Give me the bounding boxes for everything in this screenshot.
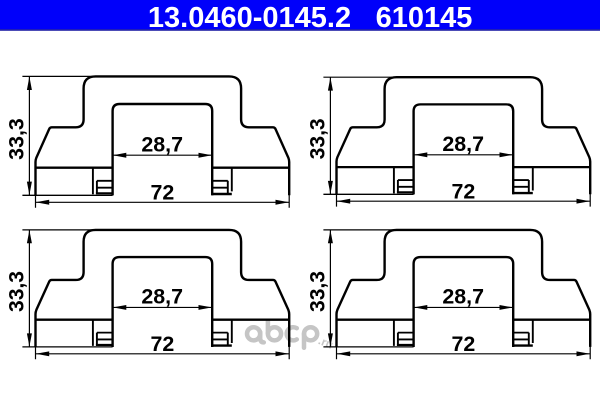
svg-text:33,3: 33,3 bbox=[306, 271, 329, 312]
svg-text:13.0460-0145.2: 13.0460-0145.2 bbox=[148, 2, 351, 34]
svg-text:33,3: 33,3 bbox=[5, 118, 29, 160]
svg-text:28,7: 28,7 bbox=[442, 132, 484, 156]
svg-text:28,7: 28,7 bbox=[141, 132, 183, 156]
svg-text:72: 72 bbox=[452, 333, 476, 356]
svg-text:72: 72 bbox=[151, 333, 175, 356]
svg-text:72: 72 bbox=[151, 181, 175, 205]
svg-text:72: 72 bbox=[451, 180, 475, 204]
svg-text:28,7: 28,7 bbox=[442, 286, 484, 309]
svg-text:33,3: 33,3 bbox=[305, 118, 329, 159]
svg-text:28,7: 28,7 bbox=[141, 286, 183, 309]
svg-text:33,3: 33,3 bbox=[5, 271, 28, 312]
svg-text:610145: 610145 bbox=[376, 2, 473, 34]
